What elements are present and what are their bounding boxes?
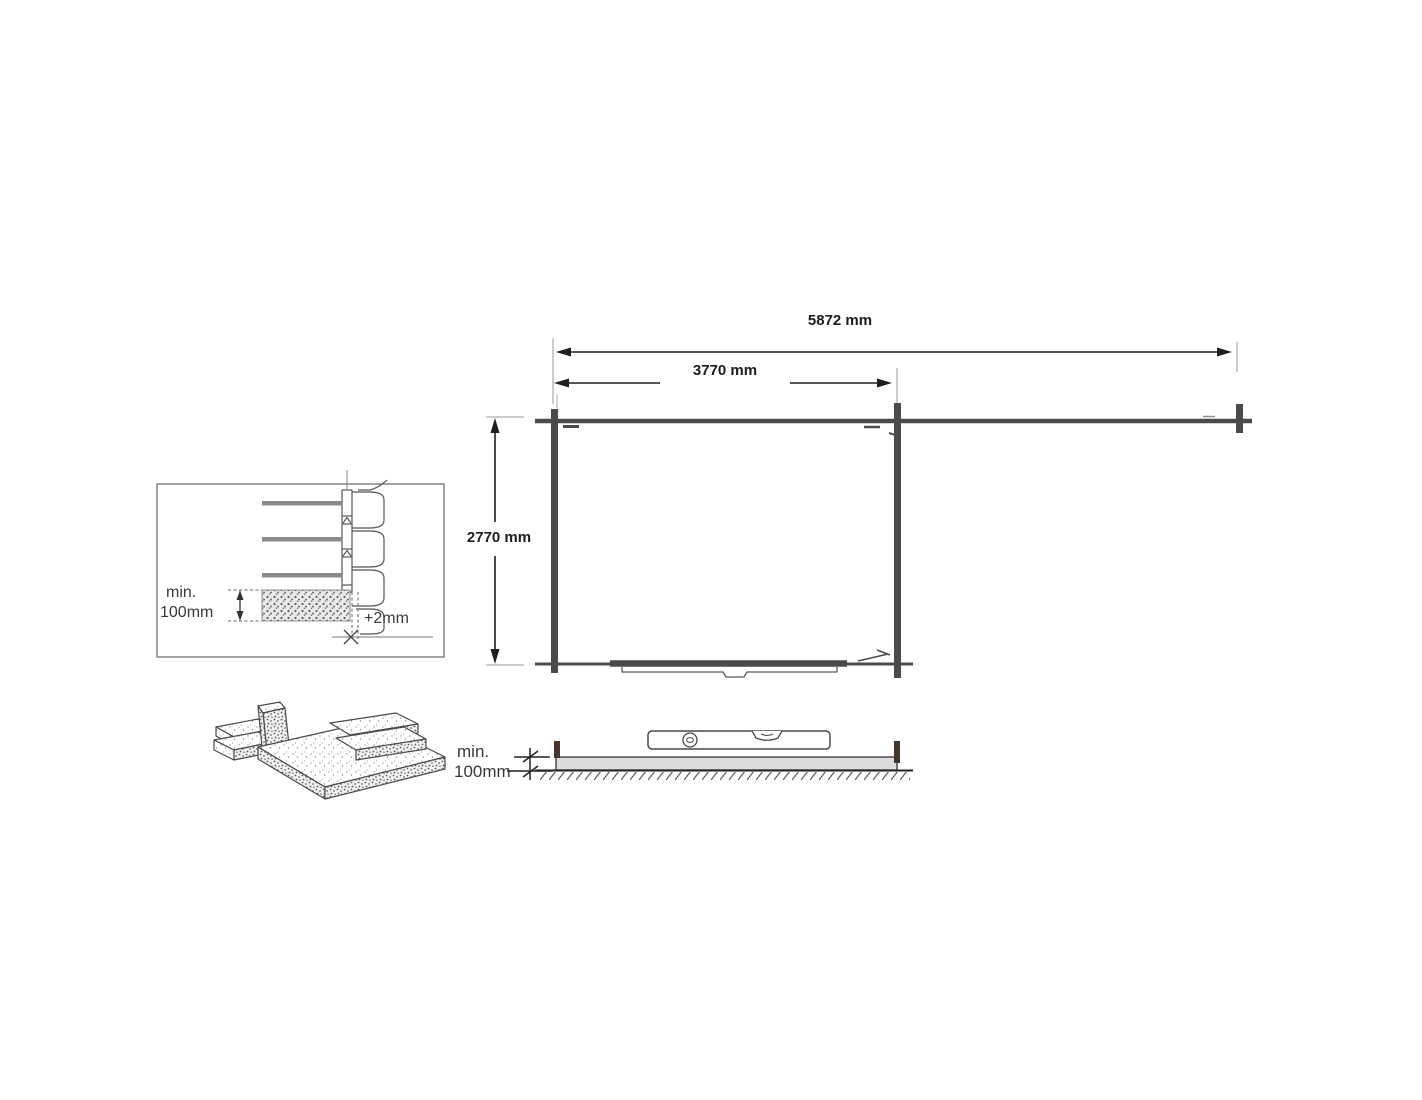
dim-label-inner-width: 3770 mm (655, 362, 795, 379)
detail-min-label-line2: 100mm (160, 604, 213, 622)
corner-peg-right (894, 741, 900, 763)
dim-label-total-width: 5872 mm (770, 312, 910, 329)
diagram-linework (0, 0, 1422, 1100)
detail-min-label-line1: min. (166, 584, 196, 602)
paving-slabs-illustration (214, 702, 445, 799)
corner-peg-left (554, 741, 560, 758)
assembly-diagram-page: 5872 mm 3770 mm 2770 mm min. 100mm +2mm … (0, 0, 1422, 1100)
plan-walls (535, 394, 1252, 678)
floor-plan-drawing (486, 338, 1252, 678)
section-min-label-line2: 100mm (454, 762, 511, 782)
ground-hatch (535, 771, 913, 783)
wall-base-detail-inset (157, 470, 444, 657)
foundation-slab (556, 757, 897, 770)
spirit-level (648, 731, 830, 749)
section-min-label-line1: min. (457, 742, 489, 762)
foundation-cross-section (507, 731, 913, 782)
dim-label-depth: 2770 mm (429, 529, 569, 546)
expansion-gap-label: +2mm (364, 610, 409, 628)
